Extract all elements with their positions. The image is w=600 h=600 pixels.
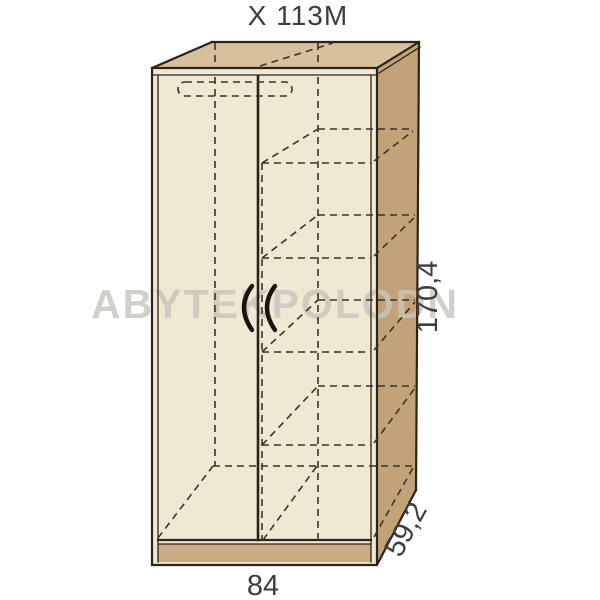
top-face — [152, 42, 419, 68]
diagram-title: X 113M — [248, 0, 348, 31]
diagram-page: ABYTEKPOLODN X 113M 170,4 59,2 84 — [0, 0, 600, 600]
plinth — [158, 544, 371, 562]
dim-height: 170,4 — [412, 261, 444, 334]
dim-width: 84 — [247, 570, 279, 600]
wardrobe-diagram: ABYTEKPOLODN X 113M 170,4 59,2 84 — [0, 0, 600, 600]
